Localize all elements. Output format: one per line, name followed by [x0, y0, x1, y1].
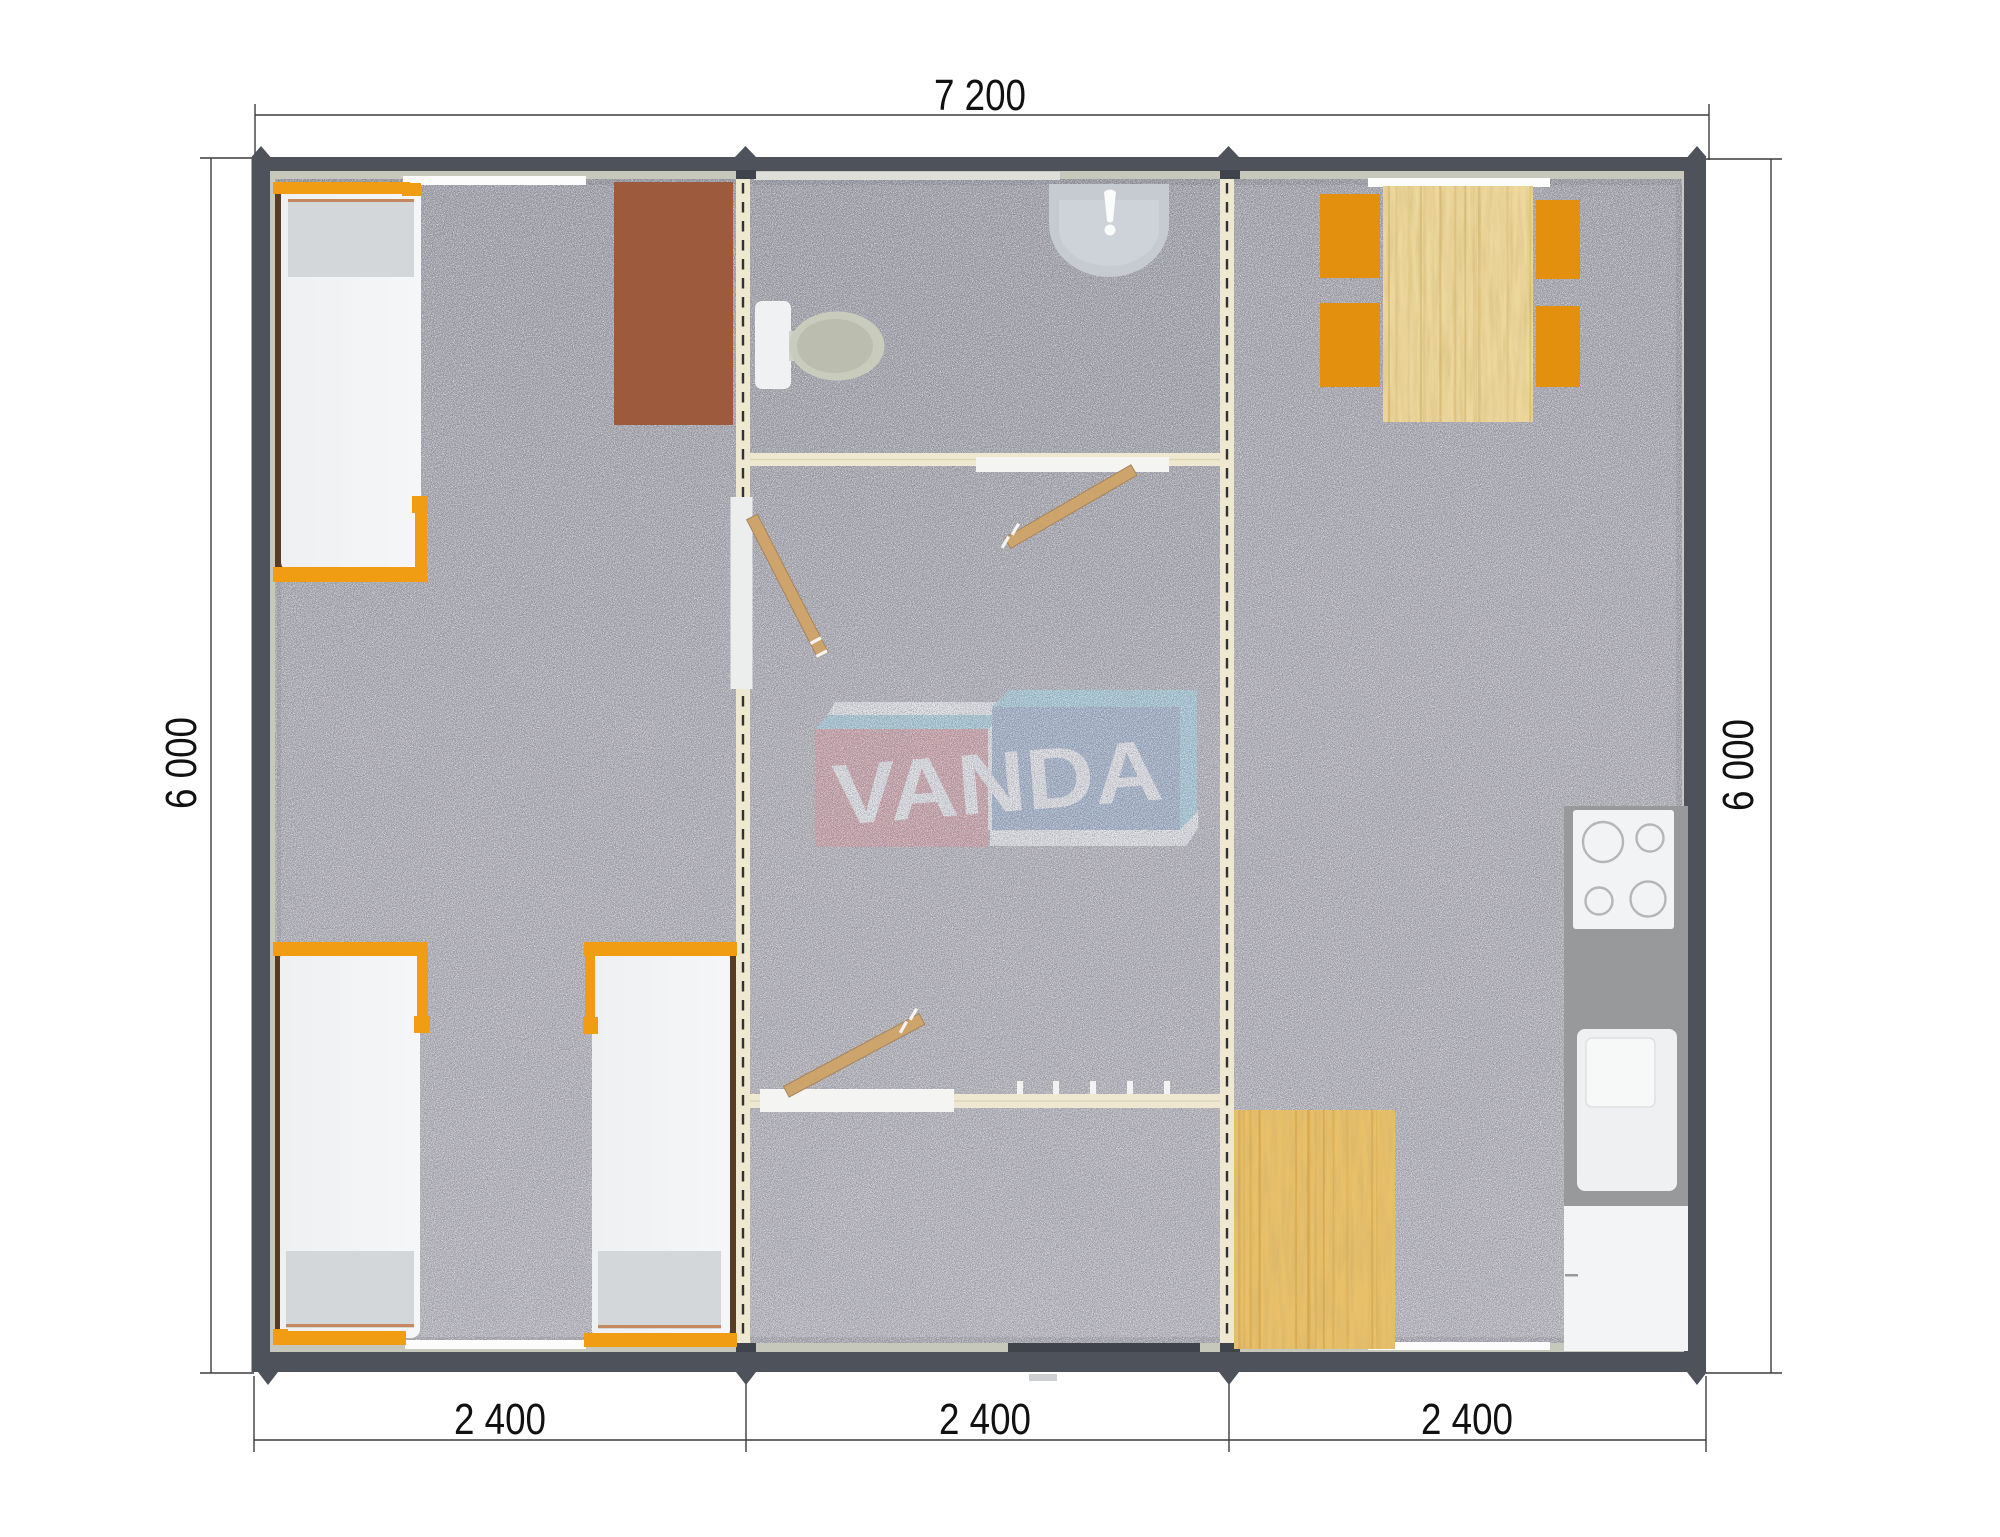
svg-text:2 400: 2 400	[939, 1395, 1031, 1444]
svg-text:6 000: 6 000	[157, 717, 206, 809]
svg-text:2 400: 2 400	[1421, 1395, 1513, 1444]
svg-text:2 400: 2 400	[454, 1395, 546, 1444]
svg-text:6 000: 6 000	[1714, 719, 1763, 811]
svg-text:7 200: 7 200	[934, 71, 1026, 120]
